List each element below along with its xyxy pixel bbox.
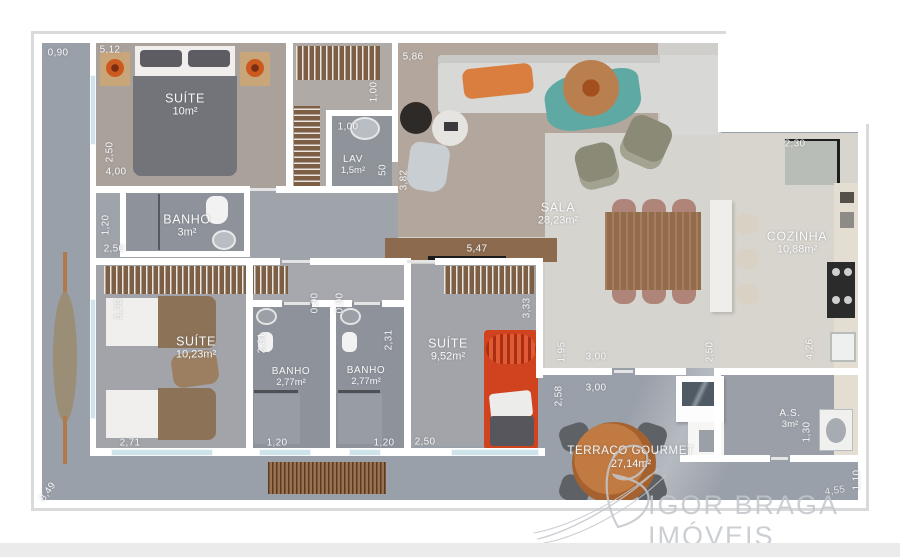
side-table-wood [563, 60, 619, 116]
coffee-table-black [400, 102, 432, 134]
bed-headboard-pleats [486, 334, 536, 364]
window [112, 450, 212, 455]
room-name: BANHO [347, 365, 386, 377]
dim-label: 3,00 [586, 383, 607, 394]
room-label-suite1: SUÍTE 10m² [165, 91, 205, 118]
dim-label: 3,00 [586, 352, 607, 363]
burner [832, 268, 840, 276]
bar-stool [737, 214, 758, 234]
room-area: 10,23m² [176, 349, 216, 362]
lamp-icon [106, 59, 124, 77]
room-label-banho-suite1: BANHO 3m² [163, 212, 210, 239]
room-label-sala: SALA 28,23m² [538, 200, 578, 227]
bath-sink-icon [258, 310, 275, 323]
dim-label: 2,30 [785, 139, 806, 150]
wall-segment [392, 110, 398, 162]
wall-segment [536, 368, 612, 375]
wall-segment [330, 300, 336, 456]
wall-segment [718, 34, 728, 132]
books [444, 122, 458, 131]
dim-label: 1,95 [557, 342, 568, 363]
closet [444, 266, 534, 294]
wall-segment [120, 251, 250, 257]
bed-pillow [188, 50, 230, 67]
door-threshold [771, 457, 788, 460]
wall-segment [635, 368, 686, 375]
window [91, 300, 95, 418]
wall-segment [244, 191, 250, 257]
wall-segment [310, 258, 405, 265]
wall-segment [246, 300, 282, 307]
room-area: 3m² [163, 227, 210, 240]
wall-segment [90, 186, 250, 193]
sofa-chaise [660, 55, 722, 135]
shower-divider [338, 390, 380, 393]
shower-tray [254, 394, 300, 444]
window [452, 450, 538, 455]
burner [844, 268, 852, 276]
dim-label: 2,50 [104, 244, 125, 255]
dim-label: 5,86 [403, 52, 424, 63]
closet [296, 46, 380, 80]
shower-divider [254, 390, 298, 393]
dim-label: 1,00 [338, 122, 359, 133]
outside-area [726, 14, 900, 124]
room-area: 9,52m² [428, 351, 468, 364]
room-name: SUÍTE [428, 336, 468, 350]
dim-label: 3,33 [522, 298, 533, 319]
dim-label: 1,00 [369, 82, 380, 103]
bar-stool [737, 249, 758, 269]
room-name: A.S. [779, 408, 800, 420]
bed-blanket [490, 416, 534, 446]
room-area: 2,77m² [347, 376, 386, 387]
room-label-suite3: SUÍTE 9,52m² [428, 336, 468, 363]
room-name: SUÍTE [176, 334, 216, 348]
dim-label: 2,50 [705, 342, 716, 363]
dim-label: 2,58 [554, 386, 565, 407]
room-area: 2,77m² [272, 377, 311, 388]
dim-label: 0,90 [335, 293, 346, 314]
room-name: SALA [538, 200, 578, 214]
dim-label: 3,82 [399, 170, 410, 191]
wall-segment [392, 34, 398, 114]
wall-segment [34, 34, 726, 43]
wall-segment [858, 124, 866, 508]
wall-segment [286, 34, 293, 191]
wall-segment [326, 110, 332, 192]
room-label-banho-suite3: BANHO 2,77m² [347, 365, 386, 387]
room-label-suite2: SUÍTE 10,23m² [176, 334, 216, 361]
dim-label: 2,71 [120, 438, 141, 449]
kitchen-island [710, 200, 732, 312]
dim-label: 1,10 [852, 470, 863, 491]
room-area: 10,88m² [767, 244, 827, 257]
dim-label: 1,20 [374, 438, 395, 449]
bar-stool [737, 284, 758, 304]
door-threshold [407, 260, 435, 263]
room-area: 28,23m² [538, 215, 578, 228]
room-area: 3m² [779, 419, 800, 430]
wall-segment [718, 124, 866, 132]
window [91, 76, 95, 144]
dim-label: 5,47 [467, 244, 488, 255]
room-label-banho-suite2: BANHO 2,77m² [272, 366, 311, 388]
dim-label: 4,26 [805, 339, 816, 360]
door-threshold [282, 260, 310, 263]
laundry-basin [826, 418, 846, 443]
wall-segment [790, 455, 858, 462]
bath-sink-icon [214, 232, 234, 248]
hammock-body [53, 292, 77, 422]
window [350, 450, 380, 455]
room-name: SUÍTE [165, 91, 205, 105]
window [260, 450, 310, 455]
burner [844, 296, 852, 304]
wall-segment [326, 110, 392, 116]
dim-label: 4,00 [106, 167, 127, 178]
wall-segment [34, 34, 42, 508]
room-name: BANHO [272, 366, 311, 378]
floorplan-image: SUÍTE 10m² LAV 1,5m² SALA 28,23m² COZINH… [0, 0, 900, 557]
countertop-appliance [840, 212, 854, 228]
kitchen-sink-icon [830, 332, 856, 362]
closet [294, 106, 320, 188]
door-threshold [354, 302, 380, 305]
wall-segment [404, 258, 411, 456]
shower-tray [338, 394, 382, 444]
toilet-icon [342, 332, 357, 352]
gourmet-counter-window [682, 382, 718, 406]
room-label-cozinha: COZINHA 10,88m² [767, 229, 827, 256]
room-name: LAV [341, 154, 365, 166]
deck-bench [268, 462, 386, 494]
burner [832, 296, 840, 304]
room-label-as: A.S. 3m² [779, 408, 800, 430]
bed-pillow [140, 50, 182, 67]
dim-label: 2,50 [105, 142, 116, 163]
wall-segment [714, 368, 858, 375]
wall-segment [536, 258, 543, 378]
wall-segment [246, 258, 253, 456]
door-threshold [250, 188, 276, 191]
dim-label: 1,20 [101, 215, 112, 236]
room-area: 1,5m² [341, 165, 365, 176]
dim-label: 2,50 [415, 437, 436, 448]
wall-segment [276, 186, 398, 193]
dim-label: 2,31 [257, 333, 268, 354]
shower-glass [158, 194, 160, 250]
dim-label: 50 [378, 164, 389, 176]
dim-label: 0,90 [310, 293, 321, 314]
room-name: BANHO [163, 212, 210, 226]
door-threshold [284, 302, 310, 305]
dim-label: 2,31 [384, 330, 395, 351]
bed-duvet [158, 388, 216, 440]
image-bottom-band [0, 543, 900, 557]
dim-label: 1,20 [267, 438, 288, 449]
room-area: 10m² [165, 106, 205, 119]
door-threshold [614, 370, 633, 373]
countertop-appliance [840, 192, 854, 203]
closet [104, 266, 288, 294]
hammock-rope [63, 416, 67, 464]
lamp-icon [246, 59, 264, 77]
room-name: COZINHA [767, 229, 827, 243]
dining-table [605, 212, 701, 290]
dim-label: 1,30 [802, 422, 813, 443]
room-label-lav: LAV 1,5m² [341, 154, 365, 176]
dim-label: 5,12 [100, 45, 121, 56]
dim-label: 3,33 [114, 299, 125, 320]
wall-segment [435, 258, 543, 265]
dim-label: 0,90 [48, 48, 69, 59]
armchair [405, 140, 451, 193]
